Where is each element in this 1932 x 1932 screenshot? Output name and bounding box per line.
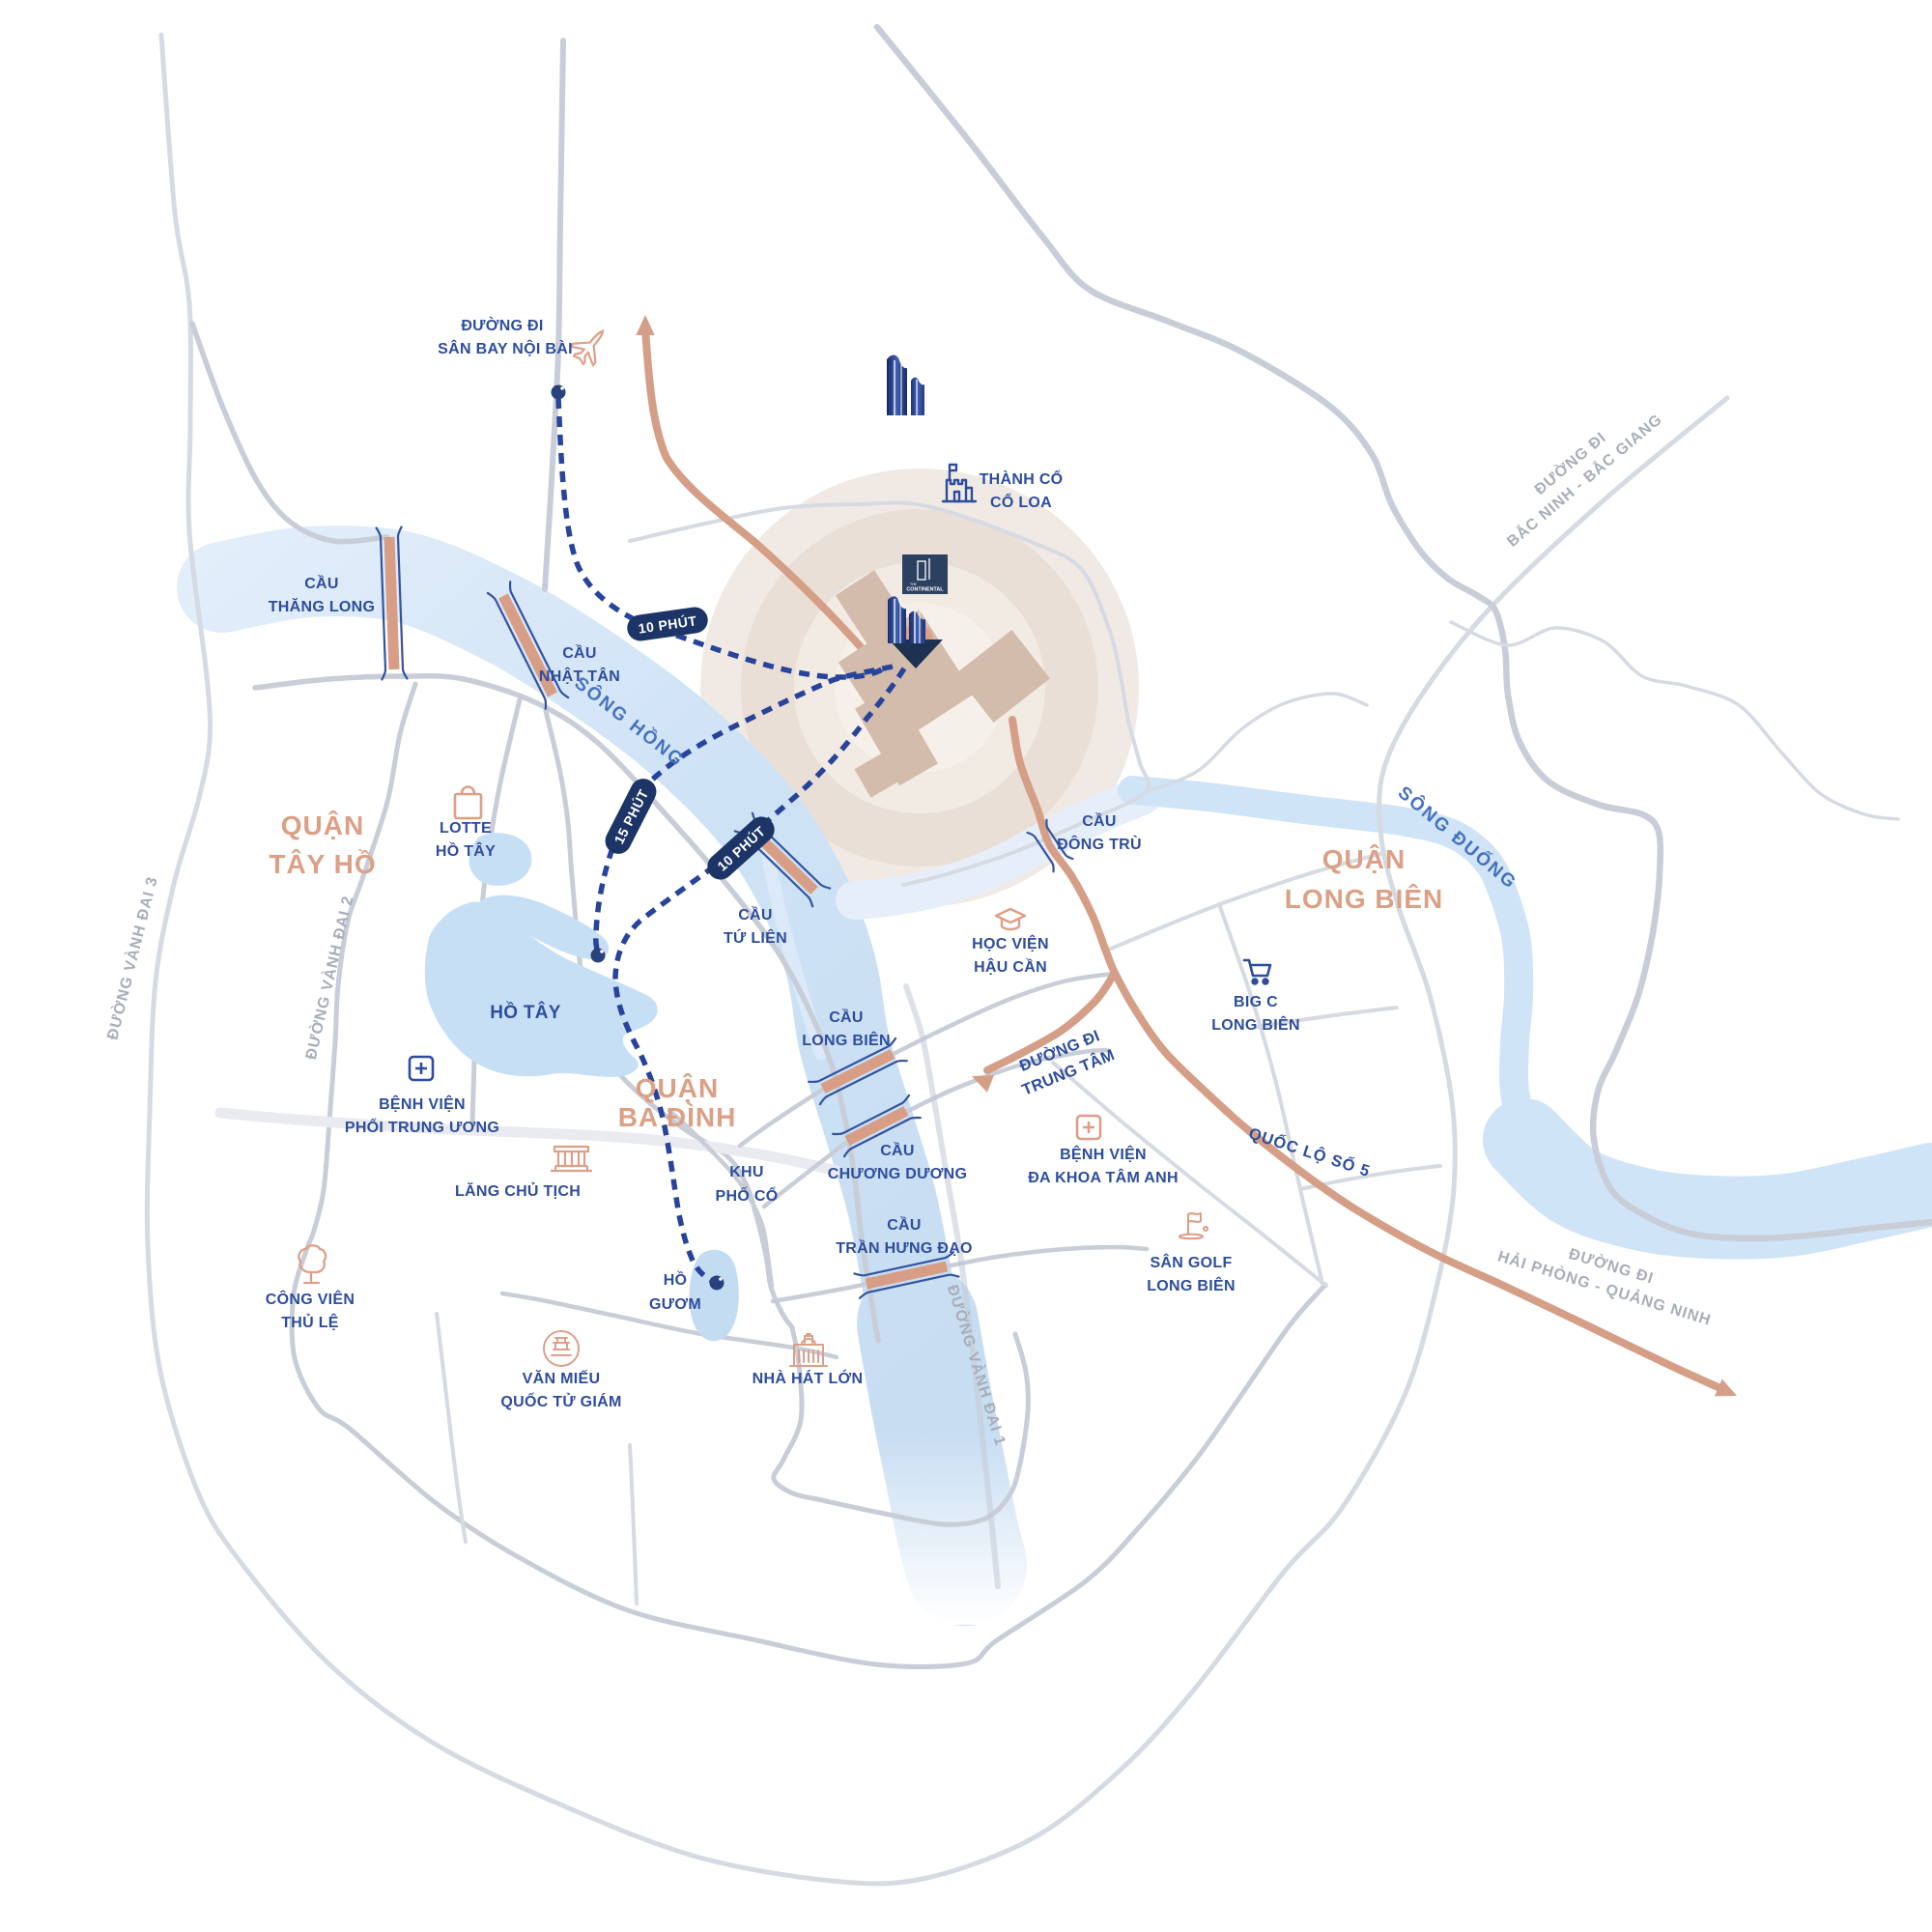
svg-text:BA ĐÌNH: BA ĐÌNH	[618, 1102, 737, 1132]
svg-text:PHỐ CỔ: PHỐ CỔ	[716, 1185, 779, 1205]
svg-text:CẦU: CẦU	[829, 1008, 864, 1026]
svg-text:CONTINENTAL: CONTINENTAL	[906, 587, 944, 593]
svg-text:HỒ TÂY: HỒ TÂY	[436, 841, 496, 860]
svg-text:ĐƯỜNG ĐI: ĐƯỜNG ĐI	[461, 316, 543, 334]
svg-text:ĐA KHOA TÂM ANH: ĐA KHOA TÂM ANH	[1028, 1168, 1179, 1186]
svg-text:TỨ LIÊN: TỨ LIÊN	[724, 928, 787, 947]
svg-text:THỦ LỆ: THỦ LỆ	[281, 1313, 339, 1331]
svg-text:TÂY HỒ: TÂY HỒ	[269, 849, 376, 879]
svg-text:LONG BIÊN: LONG BIÊN	[1211, 1015, 1300, 1034]
svg-text:CẦU: CẦU	[887, 1215, 922, 1234]
svg-text:THĂNG LONG: THĂNG LONG	[269, 597, 376, 615]
svg-text:CẦU: CẦU	[1082, 811, 1117, 830]
svg-text:SÂN BAY NỘI BÀI: SÂN BAY NỘI BÀI	[438, 339, 573, 357]
svg-text:SÂN GOLF: SÂN GOLF	[1150, 1253, 1232, 1271]
svg-text:CẦU: CẦU	[738, 905, 773, 923]
svg-text:ĐÔNG TRÙ: ĐÔNG TRÙ	[1057, 835, 1142, 853]
svg-text:QUẬN: QUẬN	[636, 1073, 719, 1103]
svg-text:CHƯƠNG DƯƠNG: CHƯƠNG DƯƠNG	[828, 1166, 968, 1182]
svg-text:QUỐC TỬ GIÁM: QUỐC TỬ GIÁM	[500, 1391, 621, 1410]
svg-text:GƯƠM: GƯƠM	[649, 1296, 701, 1313]
svg-text:CẦU: CẦU	[562, 643, 597, 662]
svg-text:LĂNG CHỦ TỊCH: LĂNG CHỦ TỊCH	[455, 1181, 581, 1200]
svg-text:CẦU: CẦU	[304, 574, 339, 592]
svg-text:HẬU CẦN: HẬU CẦN	[974, 957, 1047, 976]
svg-text:BIG C: BIG C	[1234, 994, 1278, 1010]
svg-text:THE: THE	[910, 582, 918, 586]
svg-text:HỌC VIỆN: HỌC VIỆN	[972, 934, 1049, 952]
svg-text:CẦU: CẦU	[880, 1141, 915, 1159]
svg-text:CỔ LOA: CỔ LOA	[990, 493, 1052, 511]
svg-text:NHÀ HÁT LỚN: NHÀ HÁT LỚN	[753, 1369, 864, 1387]
svg-text:THÀNH CỔ: THÀNH CỔ	[980, 469, 1064, 488]
svg-text:QUẬN: QUẬN	[1322, 844, 1406, 874]
svg-text:BỆNH VIỆN: BỆNH VIỆN	[379, 1094, 466, 1113]
svg-text:LONG BIÊN: LONG BIÊN	[1285, 884, 1444, 914]
svg-text:LONG BIÊN: LONG BIÊN	[1147, 1276, 1236, 1294]
svg-text:CÔNG VIÊN: CÔNG VIÊN	[266, 1290, 355, 1308]
svg-text:HỒ: HỒ	[664, 1270, 688, 1289]
svg-text:BỆNH VIỆN: BỆNH VIỆN	[1060, 1145, 1147, 1163]
svg-text:LOTTE: LOTTE	[440, 820, 492, 837]
svg-text:VĂN MIẾU: VĂN MIẾU	[523, 1369, 601, 1387]
svg-text:KHU: KHU	[729, 1164, 764, 1180]
svg-text:TRẦN HƯNG ĐẠO: TRẦN HƯNG ĐẠO	[836, 1238, 973, 1257]
svg-text:LONG BIÊN: LONG BIÊN	[802, 1031, 891, 1049]
svg-text:HỒ TÂY: HỒ TÂY	[490, 1002, 561, 1023]
svg-text:PHỔI TRUNG ƯƠNG: PHỔI TRUNG ƯƠNG	[345, 1118, 499, 1136]
svg-text:QUẬN: QUẬN	[281, 810, 364, 840]
